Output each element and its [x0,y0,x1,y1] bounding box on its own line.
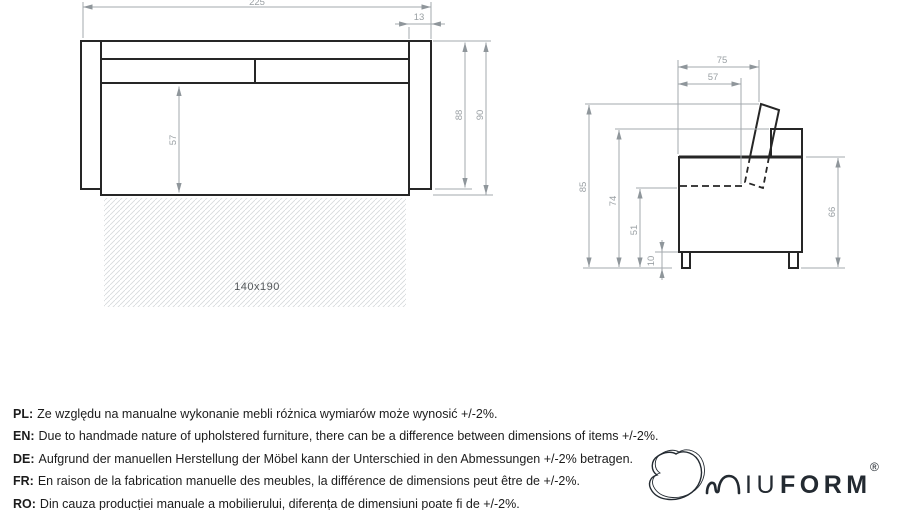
dim-side-back-height: 74 [608,196,619,207]
mattress-size-label: 140x190 [234,281,280,293]
side-back-leg [789,252,798,268]
logo-iu-text: IU [745,471,779,499]
note-de-label: DE: [13,452,35,466]
note-pl: PL:Ze względu na manualne wykonanie mebl… [13,403,658,425]
note-en: EN:Due to handmade nature of upholstered… [13,425,658,447]
logo-registered-mark: ® [870,460,879,474]
tolerance-notes: PL:Ze względu na manualne wykonanie mebl… [13,403,658,510]
note-ro-text: Din cauza producției manuale a mobilieru… [40,497,520,510]
dim-side-height-66: 66 [827,207,838,218]
side-backrest-cushion [750,104,779,157]
dim-side-seat-depth: 57 [708,72,719,83]
dim-side-seat-level: 51 [629,225,640,236]
dim-side-total-height: 85 [578,182,589,193]
note-ro: RO:Din cauza producției manuale a mobili… [13,493,658,510]
note-en-label: EN: [13,429,35,443]
note-pl-label: PL: [13,407,33,421]
logo-form-text: FORM [780,471,872,499]
page: 140x190 225 13 88 90 57 [0,0,900,510]
logo-m-glyph [707,476,739,493]
dim-side-leg-height: 10 [646,256,657,267]
note-en-text: Due to handmade nature of upholstered fu… [39,429,659,443]
note-de: DE:Aufgrund der manuellen Herstellung de… [13,448,658,470]
front-right-armrest [409,41,431,189]
dim-front-height-88: 88 [454,110,465,121]
dim-front-height-90: 90 [475,110,486,121]
front-left-armrest [81,41,101,189]
note-de-text: Aufgrund der manuellen Herstellung der M… [39,452,633,466]
note-ro-label: RO: [13,497,36,510]
dim-front-armrest-width: 13 [414,12,425,23]
dim-front-total-width: 225 [249,0,265,8]
dim-front-seat-height: 57 [168,135,179,146]
note-fr-text: En raison de la fabrication manuelle des… [38,474,580,488]
side-backrest-cushion-hidden [745,157,769,188]
logo-bean-icon [650,450,705,500]
front-view-sofa [81,41,431,195]
side-back-panel [771,129,802,157]
side-view-dimensions [583,60,845,280]
miuform-logo: IU FORM ® [643,444,893,506]
dim-side-depth-total: 75 [717,55,728,66]
note-pl-text: Ze względu na manualne wykonanie mebli r… [37,407,497,421]
note-fr: FR:En raison de la fabrication manuelle … [13,470,658,492]
side-front-leg [682,252,690,268]
note-fr-label: FR: [13,474,34,488]
